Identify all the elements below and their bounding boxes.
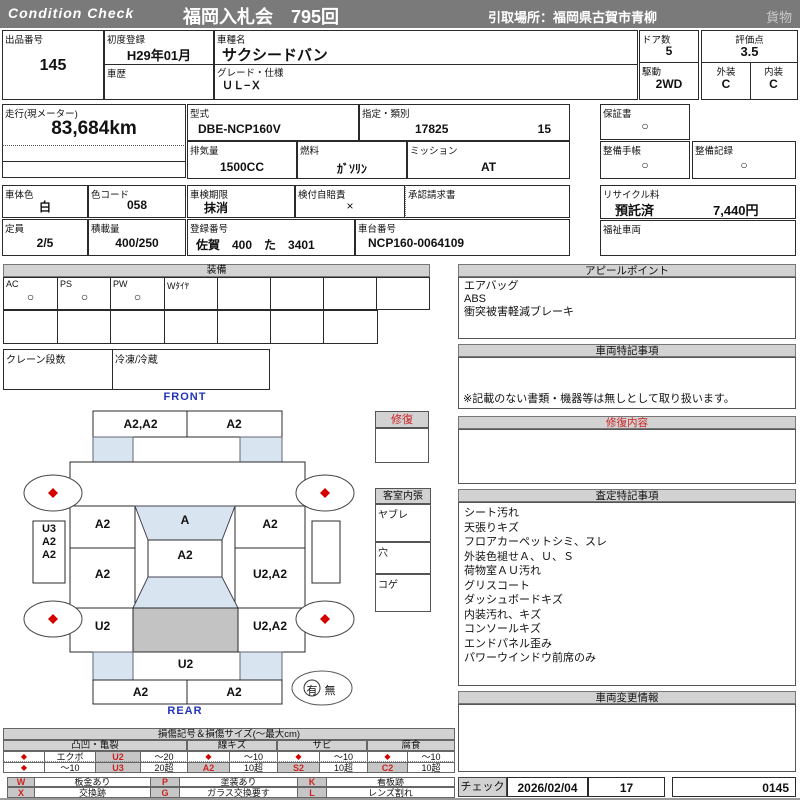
maintenance-book-mark: ○ (601, 158, 689, 172)
equipment-cell-ac: AC ○ (3, 277, 58, 310)
rear-pillar-left-shape (93, 652, 133, 680)
legend-cell: A2 (187, 762, 230, 773)
assessment-line: エンドパネル歪み (464, 637, 790, 652)
chassis-number-value: NCP160-0064109 (368, 236, 464, 250)
approval-box: 承認請求書 (405, 185, 570, 218)
legend-cell: S2 (277, 762, 320, 773)
score-value: 3.5 (702, 44, 797, 59)
welfare-vehicle-box: 福祉車両 (600, 220, 796, 256)
color-code-box: 色コード 058 (88, 185, 186, 218)
lot-number-label: 出品番号 (5, 32, 43, 46)
zone-right-rear-door: U2,A2 (235, 567, 305, 581)
registration-number-value: 佐賀 400 た 3401 (196, 236, 315, 253)
equipment-cell-wtire: Wﾀｲﾔ (164, 277, 219, 310)
brand-logo: Condition Check (8, 5, 134, 21)
rear-pillar-right-shape (240, 652, 282, 680)
legend-mark-code: P (150, 777, 180, 787)
doors-drive-box: ドア数 5 駆動 2WD (639, 30, 699, 100)
legend-mark-code: X (7, 787, 35, 798)
model-name-box: 車種名 サクシードバン グレード・仕様 ＵＬ−Ｘ (214, 30, 638, 100)
assessment-line: ダッシュボードキズ (464, 593, 790, 608)
drive-label: 駆動 (642, 64, 661, 78)
legend-cell: 10超 (229, 762, 278, 773)
transmission-label: ミッション (410, 143, 458, 157)
front-pillar-left-shape (93, 437, 133, 462)
fuel-box: 燃料 ｶﾞｿﾘﾝ (297, 141, 407, 179)
inspection-value: 抹消 (204, 199, 228, 216)
grade-value: ＵＬ−Ｘ (222, 77, 261, 93)
zone-right-front-door: A2 (235, 517, 305, 531)
auction-sheet: Condition Check 福岡入札会 795回 引取場所：福岡県古賀市青柳… (0, 0, 800, 800)
vehicle-notes-disclaimer: ※記載のない書類・機器等は無しとして取り扱います。 (463, 393, 735, 406)
equipment-cell-ps: PS ○ (57, 277, 112, 310)
right-sill-box (312, 521, 340, 583)
maintenance-record-label: 整備記録 (695, 143, 733, 157)
legend-mark-label: 板金あり (34, 777, 151, 787)
legend-group-corrosion: 腐食 (367, 740, 455, 751)
equipment-label: PW (113, 279, 128, 289)
chassis-number-label: 車台番号 (358, 221, 396, 235)
legend-cell: 〜10 (44, 762, 96, 773)
legend-mark-code: K (297, 777, 327, 787)
class-label: 指定・類別 (362, 106, 410, 120)
class-number-2: 15 (538, 122, 551, 136)
body-color-box: 車体色 白 (2, 185, 88, 218)
assessment-line: パワーウインドウ前席のみ (464, 651, 790, 666)
cabin-lining-header: 客室内張 (375, 488, 431, 504)
appeal-body: エアバッグ ABS 衝突被害軽減ブレーキ (458, 277, 796, 339)
legend-mark-code: G (150, 787, 180, 798)
displacement-value: 1500CC (188, 160, 296, 174)
change-info-body (458, 704, 796, 772)
fuel-label: 燃料 (300, 143, 319, 157)
assessment-line: 荷物室ＡＵ汚れ (464, 564, 790, 579)
appeal-line: ABS (464, 293, 790, 306)
cabin-row-label: 穴 (378, 544, 388, 559)
title-bar: Condition Check 福岡入札会 795回 引取場所：福岡県古賀市青柳… (0, 0, 800, 28)
history-label: 車歴 (107, 66, 126, 80)
body-color-value: 白 (3, 198, 87, 215)
maintenance-record-box: 整備記録 ○ (692, 141, 796, 179)
legend-cell: 〜10 (407, 751, 455, 762)
legend-cell: エクボ (44, 751, 96, 762)
assessment-line: 外装色褪せＡ、Ｕ、Ｓ (464, 550, 790, 565)
zone-left-sill-line: U3 (33, 523, 65, 536)
legend-cell: 〜10 (319, 751, 368, 762)
cargo-bed-shape (133, 608, 238, 652)
load-capacity-value: 400/250 (89, 236, 185, 250)
vehicle-notes-header: 車両特記事項 (458, 344, 796, 357)
exterior-grade-value: C (702, 77, 750, 91)
transmission-value: AT (408, 160, 569, 174)
first-registration-label: 初度登録 (107, 32, 145, 46)
warranty-mark: ○ (601, 119, 689, 133)
equipment-label: PS (60, 279, 72, 289)
capacity-value: 2/5 (3, 236, 87, 250)
model-code-label: 型式 (190, 106, 209, 120)
equipment-cell-empty (376, 277, 430, 310)
check-number-cell: 17 (588, 777, 665, 797)
lot-number-value: 145 (3, 57, 103, 75)
legend-cell: C2 (367, 762, 408, 773)
divider (105, 64, 213, 65)
recycle-fee-value: 7,440円 (713, 200, 759, 219)
mileage-extra-row (2, 146, 186, 162)
repair-mini-body (375, 428, 429, 463)
zone-left-rear-door: A2 (70, 567, 135, 581)
assessment-line: シート汚れ (464, 506, 790, 521)
crane-label: クレーン段数 (6, 351, 66, 366)
displacement-label: 排気量 (190, 143, 219, 157)
welfare-vehicle-label: 福祉車両 (603, 222, 641, 236)
equipment-cell-empty (323, 277, 378, 310)
legend-cell: U3 (95, 762, 141, 773)
zone-tailgate: U2 (133, 657, 238, 671)
appeal-line: 衝突被害軽減ブレーキ (464, 306, 790, 319)
legend-cell: U2 (95, 751, 141, 762)
legend-cell: 〜10 (229, 751, 278, 762)
assessment-body: シート汚れ 天張りキズ フロアカーペットシミ、スレ 外装色褪せＡ、Ｕ、Ｓ 荷物室… (458, 502, 796, 686)
repair-detail-header: 修復内容 (458, 416, 796, 429)
chassis-number-box: 車台番号 NCP160-0064109 (355, 219, 570, 256)
presence-yes: 有 (304, 682, 320, 698)
fuel-value: ｶﾞｿﾘﾝ (298, 160, 406, 177)
first-registration-value: H29年01月 (105, 45, 213, 64)
legend-cell: 10超 (319, 762, 368, 773)
doors-value: 5 (640, 44, 698, 58)
fridge-label: 冷凍/冷蔵 (115, 351, 158, 366)
recycle-fee-box: リサイクル料 預託済 7,440円 (600, 185, 796, 219)
class-number-1: 17825 (415, 122, 448, 136)
presence-no: 無 (322, 682, 338, 698)
equipment-cell-empty (323, 310, 378, 344)
capacity-box: 定員 2/5 (2, 219, 88, 256)
zone-left-sill-line: A2 (33, 549, 65, 562)
equipment-mark: ○ (4, 290, 57, 304)
legend-cell: 10超 (407, 762, 455, 773)
vehicle-notes-body: ※記載のない書類・機器等は無しとして取り扱います。 (458, 357, 796, 409)
cabin-row-label: ヤブレ (378, 506, 408, 521)
zone-rear-bumper-right: A2 (187, 685, 281, 699)
color-code-value: 058 (89, 198, 185, 212)
fridge-box: 冷凍/冷蔵 (112, 349, 270, 390)
load-capacity-label: 積載量 (91, 221, 120, 235)
drive-value: 2WD (640, 77, 698, 91)
zone-windshield: A (135, 513, 235, 527)
transmission-box: ミッション AT (407, 141, 570, 179)
equipment-cell-empty (217, 277, 272, 310)
maintenance-book-label: 整備手帳 (603, 143, 641, 157)
legend-mark-label: レンズ割れ (326, 787, 455, 798)
mileage-extra-row (2, 162, 186, 178)
rear-label: REAR (155, 705, 215, 717)
equipment-cell-empty (3, 310, 58, 344)
interior-grade-label: 内装 (750, 64, 797, 78)
zone-front-bumper-left: A2,A2 (94, 417, 187, 431)
assessment-line: グリスコート (464, 579, 790, 594)
legend-mark-code: W (7, 777, 35, 787)
equipment-cell-pw: PW ○ (110, 277, 165, 310)
equipment-label: Wﾀｲﾔ (167, 279, 189, 292)
equipment-cell-empty (57, 310, 112, 344)
model-code-box: 型式 DBE-NCP160V (187, 104, 359, 141)
appeal-line: エアバッグ (464, 280, 790, 293)
score-box: 評価点 3.5 外装 C 内装 C (701, 30, 798, 100)
diamond-icon: ◆ (3, 762, 45, 773)
front-label: FRONT (155, 391, 215, 403)
equipment-cell-empty (217, 310, 272, 344)
model-name-value: サクシードバン (222, 44, 328, 65)
legend-group-rust: サビ (277, 740, 367, 751)
insurance-mark: × (296, 199, 404, 213)
crane-box: クレーン段数 (3, 349, 113, 390)
model-code-value: DBE-NCP160V (198, 122, 281, 136)
warranty-label: 保証書 (603, 106, 632, 120)
diamond-icon: ◆ (3, 751, 45, 762)
assessment-header: 査定特記事項 (458, 489, 796, 502)
displacement-box: 排気量 1500CC (187, 141, 297, 179)
legend-mark-label: 交換跡 (34, 787, 151, 798)
equipment-cell-empty (164, 310, 219, 344)
legend-mark-label: 看板跡 (326, 777, 455, 787)
legend-title: 損傷記号＆損傷サイズ(〜最大cm) (3, 728, 455, 740)
equipment-cell-empty (270, 277, 325, 310)
zone-left-front-door: A2 (70, 517, 135, 531)
zone-rear-bumper-left: A2 (94, 685, 187, 699)
maintenance-record-mark: ○ (693, 158, 795, 172)
first-registration-box: 初度登録 H29年01月 車歴 (104, 30, 214, 100)
legend-cell: 〜20 (140, 751, 188, 762)
rear-window-shape (133, 577, 238, 608)
assessment-line: 天張りキズ (464, 521, 790, 536)
equipment-cell-empty (110, 310, 165, 344)
repair-mini-header: 修復 (375, 411, 429, 428)
zone-right-quarter: U2,A2 (235, 619, 305, 633)
auction-title: 福岡入札会 795回 (183, 3, 339, 29)
cabin-row-tear: ヤブレ (375, 504, 431, 542)
check-number: 17 (589, 781, 664, 795)
front-pillar-right-shape (240, 437, 282, 462)
equipment-mark: ○ (58, 290, 111, 304)
appeal-header: アピールポイント (458, 264, 796, 277)
capacity-label: 定員 (5, 221, 24, 235)
legend-mark-label: ガラス交換要す (179, 787, 298, 798)
approval-label: 承認請求書 (408, 187, 456, 201)
check-label: チェック (458, 777, 507, 797)
diamond-icon: ◆ (367, 751, 408, 762)
equipment-cell-empty (270, 310, 325, 344)
legend-group-scratch: 線キズ (187, 740, 277, 751)
zone-front-bumper-right: A2 (187, 417, 281, 431)
mileage-value: 83,684km (3, 118, 185, 140)
sheet-code-cell: 0145 (672, 777, 796, 797)
registration-number-label: 登録番号 (190, 221, 228, 235)
registration-number-box: 登録番号 佐賀 400 た 3401 (187, 219, 355, 256)
equipment-mark: ○ (111, 290, 164, 304)
diamond-icon: ◆ (187, 751, 230, 762)
assessment-line: フロアカーペットシミ、スレ (464, 535, 790, 550)
equipment-header: 装備 (3, 264, 430, 277)
exterior-grade-label: 外装 (702, 64, 750, 78)
warranty-box: 保証書 ○ (600, 104, 690, 140)
zone-left-sill-line: A2 (33, 536, 65, 549)
recycle-status: 預託済 (615, 200, 654, 219)
check-date-cell: 2026/02/04 (507, 777, 588, 797)
legend-mark-code: L (297, 787, 327, 798)
legend-mark-label: 塗装あり (179, 777, 298, 787)
zone-roof: A2 (148, 548, 222, 562)
load-capacity-box: 積載量 400/250 (88, 219, 186, 256)
mileage-box: 走行(現メーター) 83,684km (2, 104, 186, 146)
equipment-label: AC (6, 279, 19, 289)
legend-cell: 20超 (140, 762, 188, 773)
change-info-header: 車両変更情報 (458, 691, 796, 704)
interior-grade-value: C (750, 77, 797, 91)
recycle-fee-label: リサイクル料 (603, 187, 660, 201)
assessment-line: 内装汚れ、キズ (464, 608, 790, 623)
vehicle-category: 貨物 (766, 7, 792, 26)
divider (640, 62, 698, 63)
assessment-line: コンソールキズ (464, 622, 790, 637)
class-box: 指定・類別 17825 15 (359, 104, 570, 141)
pickup-location: 引取場所：福岡県古賀市青柳 (488, 7, 657, 26)
inspection-box: 車検期限 抹消 (187, 185, 295, 218)
insurance-box: 検付自賠責 × (295, 185, 405, 218)
repair-detail-body (458, 429, 796, 484)
cabin-row-hole: 穴 (375, 542, 431, 574)
lot-number-box: 出品番号 145 (2, 30, 104, 100)
zone-left-quarter: U2 (70, 619, 135, 633)
check-date: 2026/02/04 (508, 781, 587, 795)
cabin-row-label: コゲ (378, 576, 398, 591)
cabin-row-burn: コゲ (375, 574, 431, 612)
diamond-icon: ◆ (277, 751, 320, 762)
legend-group-dents: 凸凹・亀裂 (3, 740, 187, 751)
maintenance-book-box: 整備手帳 ○ (600, 141, 690, 179)
sheet-code: 0145 (762, 781, 789, 795)
